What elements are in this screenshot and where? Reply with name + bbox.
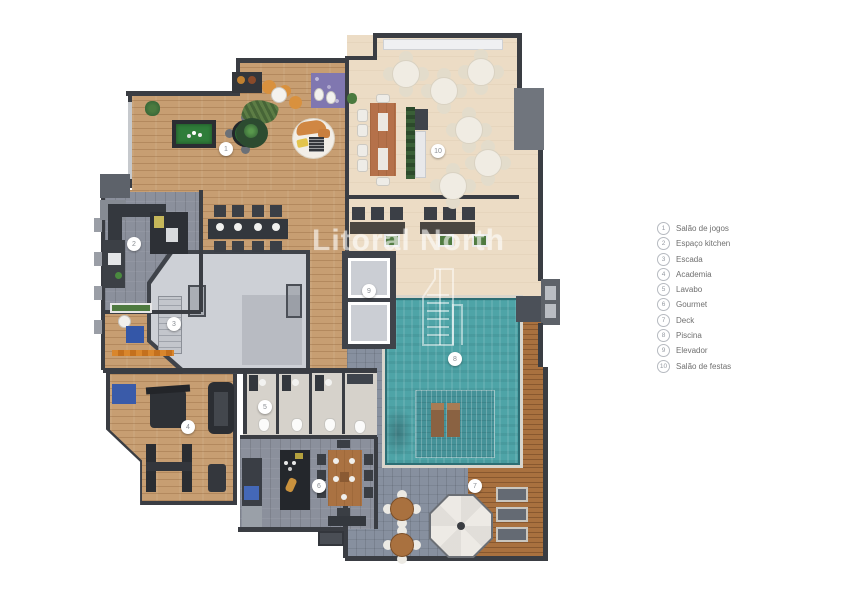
stair-shadow xyxy=(242,295,302,365)
room-marker: 7 xyxy=(468,479,482,493)
banquet-table xyxy=(455,116,483,144)
stall-wall xyxy=(276,372,279,434)
bowl xyxy=(237,76,245,84)
gourmet-counter-low xyxy=(242,506,262,527)
bar-stool xyxy=(252,241,264,252)
hanging-chair xyxy=(314,88,324,101)
room-marker: 3 xyxy=(167,317,181,331)
room-marker-number: 8 xyxy=(453,356,457,363)
legend-item-label: Lavabo xyxy=(676,285,702,294)
barbell xyxy=(146,462,192,471)
legend-item-label: Gourmet xyxy=(676,300,707,309)
legend-item: 5 Lavabo xyxy=(657,284,731,295)
hedge xyxy=(406,107,415,179)
service-niche-cell xyxy=(545,286,556,300)
legend-item: 9 Elevador xyxy=(657,345,731,356)
wall xyxy=(347,195,519,199)
banquet-table xyxy=(474,149,502,177)
wall xyxy=(517,33,522,91)
plant xyxy=(145,101,160,116)
room-marker: 5 xyxy=(258,400,272,414)
legend-item-number: 2 xyxy=(657,237,670,250)
room-marker: 8 xyxy=(448,352,462,366)
kitchen-item xyxy=(154,216,164,228)
umbrella-pole xyxy=(457,522,465,530)
counter xyxy=(415,131,426,178)
coffee-table xyxy=(271,87,287,103)
plate xyxy=(216,223,224,231)
wall xyxy=(345,556,548,561)
wall xyxy=(374,437,378,529)
sink xyxy=(108,253,121,265)
counter xyxy=(347,374,373,384)
vanity xyxy=(282,375,291,391)
runner-rug xyxy=(112,350,174,356)
sideboard xyxy=(232,72,262,93)
wall xyxy=(236,58,349,63)
pool-lounger xyxy=(447,403,460,437)
chair-white xyxy=(357,124,368,137)
chair xyxy=(337,508,350,516)
legend-item-number: 4 xyxy=(657,268,670,281)
legend-item-label: Piscina xyxy=(676,331,702,340)
planter xyxy=(110,303,152,313)
cabinet xyxy=(415,109,428,130)
legend-item-number: 8 xyxy=(657,329,670,342)
bar-stool xyxy=(252,205,264,217)
room-marker: 10 xyxy=(431,144,445,158)
legend-item: 2 Espaço kitchen xyxy=(657,238,731,249)
chair xyxy=(352,207,365,220)
chair-white xyxy=(376,177,390,186)
chair xyxy=(364,454,373,465)
legend-item-number: 5 xyxy=(657,283,670,296)
centerpiece xyxy=(340,472,349,482)
plant xyxy=(244,124,258,138)
basin xyxy=(325,379,332,386)
room-marker-number: 6 xyxy=(317,483,321,490)
hanging-chair xyxy=(326,91,336,104)
stall-wall xyxy=(243,372,247,434)
wall xyxy=(199,190,203,312)
chair-white xyxy=(357,159,368,172)
legend-item-label: Escada xyxy=(676,255,703,264)
toilet xyxy=(324,418,336,432)
room-marker: 4 xyxy=(181,420,195,434)
room-marker-number: 10 xyxy=(434,148,442,155)
basin xyxy=(259,379,266,386)
stall-wall xyxy=(342,372,345,434)
table-runner xyxy=(378,113,388,131)
legend-item-label: Espaço kitchen xyxy=(676,239,730,248)
facade-stub xyxy=(94,286,102,300)
room-marker: 2 xyxy=(127,237,141,251)
vanity xyxy=(249,375,258,391)
bar-stool xyxy=(232,205,244,217)
chair xyxy=(337,440,350,448)
pool-lounger xyxy=(431,403,444,437)
bowl xyxy=(248,76,256,84)
facade-stub xyxy=(94,218,102,232)
legend-item-number: 7 xyxy=(657,314,670,327)
legend-item: 4 Academia xyxy=(657,269,731,280)
wall xyxy=(126,91,240,96)
wall xyxy=(538,150,543,281)
floorplan-image: Litoral North 1 2 3 4 5 6 7 8 9 10 xyxy=(0,0,864,600)
room-marker-number: 2 xyxy=(132,241,136,248)
chair xyxy=(390,207,403,220)
chair-white xyxy=(357,109,368,122)
legend-item-number: 3 xyxy=(657,253,670,266)
massage-mat xyxy=(126,326,144,343)
room-marker-number: 7 xyxy=(473,483,477,490)
legend-item-label: Salão de jogos xyxy=(676,224,729,233)
legend-item-label: Salão de festas xyxy=(676,362,731,371)
legend-item-number: 9 xyxy=(657,344,670,357)
sun-lounger xyxy=(496,507,528,522)
chair-white xyxy=(357,144,368,157)
banquet-table xyxy=(439,172,467,200)
legend: 1 Salão de jogos 2 Espaço kitchen 3 Esca… xyxy=(657,223,731,376)
plant xyxy=(115,272,122,279)
sun-lounger xyxy=(496,487,528,502)
bar-stool xyxy=(214,241,226,252)
room-marker: 9 xyxy=(362,284,376,298)
legend-item-number: 10 xyxy=(657,360,670,373)
legend-item-label: Deck xyxy=(676,316,694,325)
service-niche-cell xyxy=(545,304,556,318)
wall xyxy=(103,368,377,373)
plate xyxy=(254,223,262,231)
wall xyxy=(373,33,522,38)
counter xyxy=(383,39,503,50)
banquet-table xyxy=(430,77,458,105)
gym-mat xyxy=(112,384,136,404)
building-icon xyxy=(418,265,466,347)
room-marker-number: 1 xyxy=(224,146,228,153)
plant xyxy=(347,93,357,104)
pouf xyxy=(289,96,302,109)
facade-stub xyxy=(94,320,102,334)
bar-stool xyxy=(270,205,282,217)
legend-item-number: 1 xyxy=(657,222,670,235)
chair-white xyxy=(376,94,390,103)
plate xyxy=(333,458,339,464)
legend-item: 10 Salão de festas xyxy=(657,361,731,372)
facade-stub xyxy=(94,252,102,266)
dish xyxy=(295,453,303,459)
banquet-table xyxy=(392,60,420,88)
room-marker-number: 5 xyxy=(263,404,267,411)
sink-blue xyxy=(244,486,259,500)
elevator-cab xyxy=(348,302,390,344)
bar-stool xyxy=(270,241,282,252)
wall xyxy=(240,435,377,439)
stall-wall xyxy=(309,372,312,434)
pool-corner-spa xyxy=(516,296,542,322)
toilet xyxy=(258,418,270,432)
wall xyxy=(543,367,548,560)
watermark-text: Litoral North xyxy=(312,224,548,258)
room-marker: 6 xyxy=(312,479,326,493)
weight-machine xyxy=(150,390,186,428)
patio-table xyxy=(390,497,414,521)
legend-item-label: Academia xyxy=(676,270,712,279)
gym-bench xyxy=(208,464,226,492)
credenza xyxy=(328,516,366,526)
wall xyxy=(538,323,543,367)
room-marker-number: 3 xyxy=(172,321,176,328)
chair xyxy=(443,207,456,220)
patio-table xyxy=(390,533,414,557)
room-marker: 1 xyxy=(219,142,233,156)
legend-item: 8 Piscina xyxy=(657,330,731,341)
legend-item: 6 Gourmet xyxy=(657,299,731,310)
vanity xyxy=(315,375,324,391)
legend-item: 3 Escada xyxy=(657,254,731,265)
wall xyxy=(345,60,349,197)
sun-lounger xyxy=(496,527,528,542)
cooktop xyxy=(166,228,178,242)
magazine xyxy=(309,137,324,152)
chair xyxy=(371,207,384,220)
plate xyxy=(234,223,242,231)
table-runner xyxy=(378,148,388,170)
legend-item: 1 Salão de jogos xyxy=(657,223,731,234)
grill xyxy=(318,531,344,546)
wall xyxy=(373,33,377,59)
basin xyxy=(292,379,299,386)
legend-item: 7 Deck xyxy=(657,315,731,326)
billiard-balls xyxy=(192,131,196,135)
chair xyxy=(317,454,326,465)
bar-stool xyxy=(232,241,244,252)
pool-shadow xyxy=(383,406,413,458)
treadmill-belt xyxy=(214,392,228,426)
bar-stool xyxy=(214,205,226,217)
legend-item-number: 6 xyxy=(657,298,670,311)
exterior-block xyxy=(100,174,130,198)
chair xyxy=(424,207,437,220)
stove-knob xyxy=(284,461,288,465)
column-block xyxy=(514,88,544,150)
chair xyxy=(462,207,475,220)
legend-item-label: Elevador xyxy=(676,346,708,355)
toilet xyxy=(291,418,303,432)
plate xyxy=(272,223,280,231)
banquet-table xyxy=(467,58,495,86)
toilet xyxy=(354,420,366,434)
room-marker-number: 4 xyxy=(186,424,190,431)
room-marker-number: 9 xyxy=(367,288,371,295)
